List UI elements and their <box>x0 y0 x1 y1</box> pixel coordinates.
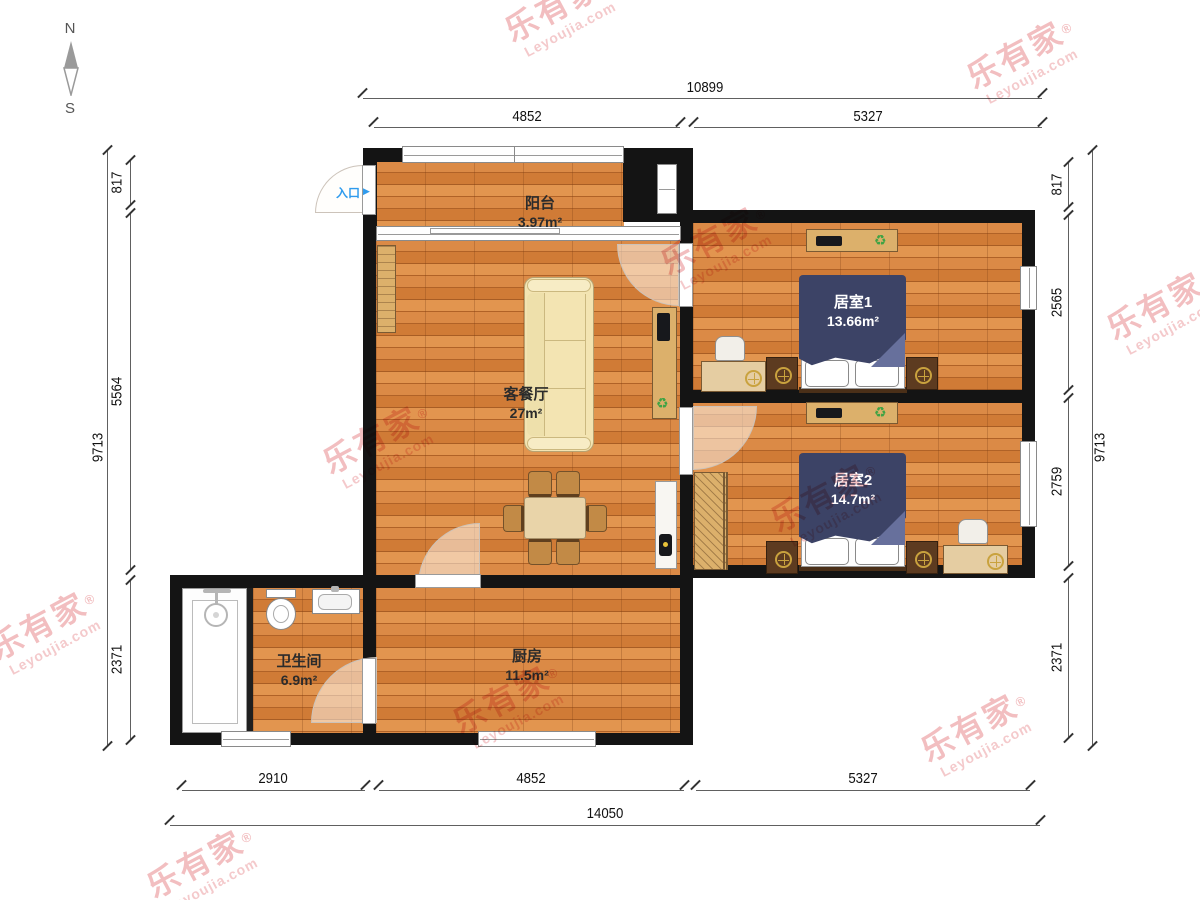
brand-watermark: 乐有家® Leyoujia.com <box>0 575 109 681</box>
desk-chair-bedroom2 <box>958 519 988 544</box>
watermark-reg: ® <box>82 591 98 609</box>
dim-top-seg2: 5327 <box>833 108 903 125</box>
kitchen-window <box>478 731 596 747</box>
dim-line-left-seg2 <box>130 213 131 570</box>
desk-lamp-icon <box>745 370 762 387</box>
dining-chair <box>528 538 552 565</box>
room-area: 13.66m² <box>803 312 903 330</box>
dim-right-seg2: 2565 <box>1049 267 1066 337</box>
dim-line-bottom-total <box>170 825 1040 826</box>
nightstand-lamp-icon <box>775 551 792 568</box>
tv-bedroom2 <box>816 408 842 418</box>
sofa-armrest <box>527 437 591 450</box>
watermark-brand: 乐有家 <box>141 824 251 900</box>
watermark-domain: Leyoujia.com <box>978 42 1087 110</box>
brand-watermark: 乐有家® Leyoujia.com <box>958 4 1087 110</box>
wall-bedrooms-top <box>680 210 1035 223</box>
dim-bottom-seg2: 4852 <box>496 770 566 787</box>
bathroom-door-leaf <box>362 658 376 724</box>
dim-left-seg1: 817 <box>109 147 126 217</box>
dim-left-seg2: 5564 <box>109 356 126 426</box>
room-area: 3.97m² <box>490 213 590 231</box>
bookshelf <box>377 245 396 333</box>
sofa-armrest <box>527 279 591 292</box>
dining-chair <box>503 505 525 532</box>
nightstand-lamp-icon <box>915 367 932 384</box>
bed-bedroom1 <box>799 275 907 393</box>
bedroom2-door-leaf <box>679 407 693 475</box>
bathroom-window <box>221 731 291 747</box>
entrance-label: 入口 <box>336 184 360 201</box>
nightstand-lamp-icon <box>775 367 792 384</box>
wall-living-left <box>363 230 376 588</box>
dim-line-right-seg1 <box>1068 162 1069 207</box>
sofa <box>524 277 594 452</box>
sink-tap <box>331 586 339 592</box>
dining-chair <box>585 505 607 532</box>
dim-left-total: 9713 <box>90 412 107 482</box>
sofa-seat <box>545 293 586 341</box>
sofa-seat <box>545 341 586 389</box>
balcony-side-window <box>657 164 677 214</box>
tv-bedroom1 <box>816 236 842 246</box>
watermark-domain: Leyoujia.com <box>1118 293 1200 361</box>
watermark-reg: ® <box>239 829 255 847</box>
watermark-brand: 乐有家 <box>915 688 1025 769</box>
dim-line-left-seg1 <box>130 160 131 205</box>
room-area: 14.7m² <box>803 490 903 508</box>
nightstand-lamp-icon <box>915 551 932 568</box>
toilet-bowl-inner <box>273 605 289 623</box>
dim-right-seg1: 817 <box>1049 149 1066 219</box>
watermark-reg: ® <box>1059 20 1075 38</box>
watermark-brand: 乐有家 <box>961 15 1071 96</box>
plant-icon: ♻ <box>874 405 887 419</box>
dim-line-bottom-seg1 <box>182 790 365 791</box>
dim-left-seg3: 2371 <box>109 624 126 694</box>
dim-right-seg4: 2371 <box>1049 622 1066 692</box>
dim-line-right-seg3 <box>1068 398 1069 566</box>
watermark-brand: 乐有家 <box>499 0 609 49</box>
dim-bottom-total: 14050 <box>570 805 640 822</box>
dim-line-top-seg1 <box>374 127 680 128</box>
dim-line-bottom-seg3 <box>696 790 1030 791</box>
dim-line-top-seg2 <box>694 127 1042 128</box>
balcony-label: 阳台 3.97m² <box>490 195 590 231</box>
watermark-reg: ® <box>1013 693 1029 711</box>
floorplan-canvas: N S 入口 ▶ <box>0 0 1200 900</box>
watermark-domain: Leyoujia.com <box>158 851 267 900</box>
bedroom2-label: 居室2 14.7m² <box>803 472 903 508</box>
room-name: 卫生间 <box>249 653 349 671</box>
bedroom1-label: 居室1 13.66m² <box>803 294 903 330</box>
watermark-domain: Leyoujia.com <box>516 0 625 63</box>
room-area: 11.5m² <box>477 666 577 684</box>
room-area: 27m² <box>476 404 576 422</box>
dim-right-seg3: 2759 <box>1049 446 1066 516</box>
bedroom2-window <box>1020 441 1037 527</box>
dim-bottom-seg3: 5327 <box>828 770 898 787</box>
room-name: 阳台 <box>490 195 590 213</box>
watermark-domain: Leyoujia.com <box>932 715 1041 783</box>
balcony-top-window-mullion <box>514 147 515 162</box>
dining-table <box>524 497 586 539</box>
room-name: 居室1 <box>803 294 903 312</box>
compass-needle-icon <box>58 40 84 96</box>
dim-line-left-seg3 <box>130 580 131 740</box>
desk-chair-bedroom1 <box>715 336 745 361</box>
wall-bathroom-right-upper <box>363 588 376 660</box>
dim-line-top-total <box>363 98 1042 99</box>
kitchen-door-leaf <box>415 574 481 588</box>
dim-line-bottom-seg2 <box>379 790 684 791</box>
watermark-brand: 乐有家 <box>1101 266 1200 347</box>
room-name: 客餐厅 <box>476 386 576 404</box>
plant-icon: ♻ <box>656 396 669 410</box>
brand-watermark: 乐有家® Leyoujia.com <box>912 677 1041 783</box>
dining-chair <box>528 471 552 498</box>
compass-south-label: S <box>62 100 78 117</box>
dining-chair <box>556 471 580 498</box>
room-area: 6.9m² <box>249 671 349 689</box>
dim-line-right-seg4 <box>1068 578 1069 738</box>
sink-basin <box>318 594 352 610</box>
dim-line-right-seg2 <box>1068 215 1069 390</box>
watermark-brand: 乐有家 <box>0 586 93 667</box>
brand-watermark: 乐有家® Leyoujia.com <box>138 813 267 900</box>
brand-watermark: 乐有家® Leyoujia.com <box>496 0 625 63</box>
dim-bottom-seg1: 2910 <box>238 770 308 787</box>
watermark-domain: Leyoujia.com <box>1 613 110 681</box>
dim-top-seg1: 4852 <box>492 108 562 125</box>
room-name: 厨房 <box>477 648 577 666</box>
wall-left-outer <box>170 575 182 745</box>
fridge-panel-dot <box>663 542 668 547</box>
shower-head-dot <box>213 612 219 618</box>
bedroom1-window <box>1020 266 1037 310</box>
wardrobe <box>694 472 728 570</box>
compass-north-label: N <box>62 20 78 37</box>
dining-chair <box>556 538 580 565</box>
wall-bathroom-right-lower <box>363 722 376 745</box>
bed-bedroom2 <box>799 453 907 571</box>
room-name: 居室2 <box>803 472 903 490</box>
desk-lamp-icon <box>987 553 1004 570</box>
plant-icon: ♻ <box>874 233 887 247</box>
kitchen-label: 厨房 11.5m² <box>477 648 577 684</box>
dim-right-total: 9713 <box>1092 412 1109 482</box>
balcony-top-window <box>402 146 624 163</box>
bathroom-label: 卫生间 6.9m² <box>249 653 349 689</box>
toilet-tank <box>266 589 296 598</box>
dim-top-total: 10899 <box>670 79 740 96</box>
brand-watermark: 乐有家® Leyoujia.com <box>1098 255 1200 361</box>
tv-living <box>657 313 670 341</box>
living-label: 客餐厅 27m² <box>476 386 576 422</box>
entrance-arrow-icon: ▶ <box>363 186 370 197</box>
bedroom1-door-leaf <box>679 243 693 307</box>
sofa-front-edge <box>585 294 586 435</box>
